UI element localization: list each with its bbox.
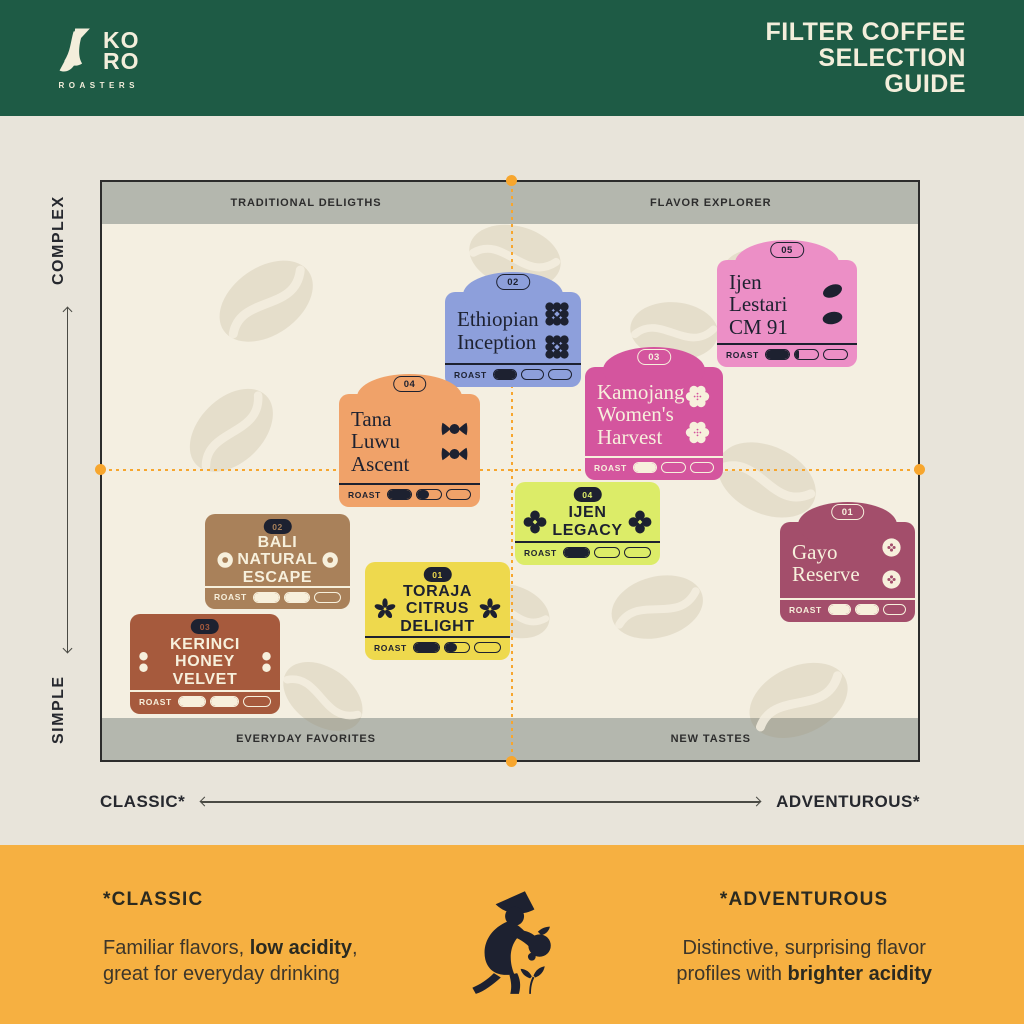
roast-label: ROAST (454, 370, 487, 380)
axis-dot-left (95, 464, 106, 475)
quadrant-label-new-tastes: NEW TASTES (671, 733, 751, 745)
classic-legend-body: Familiar flavors, low acidity, great for… (103, 935, 358, 987)
card-ijen-lestari-cm-91: 05 Ijen Lestari CM 91 ROAST (717, 260, 857, 367)
roast-level-pills (633, 462, 714, 473)
classic-legend-title: *CLASSIC (103, 889, 358, 911)
axis-label-adventurous: ADVENTUROUS* (776, 792, 920, 812)
roast-label: ROAST (139, 697, 172, 707)
roast-level-pills (178, 696, 271, 707)
logo-subtitle: ROASTERS (59, 81, 139, 90)
roast-level-pills (563, 547, 651, 558)
roast-indicator: ROAST (585, 456, 723, 480)
card-number-badge: 01 (831, 504, 865, 520)
rooster-logo-icon (58, 26, 100, 76)
farmer-icon (456, 881, 568, 1005)
roast-level-pills (828, 604, 906, 615)
axis-label-classic: CLASSIC* (100, 792, 185, 812)
card-gayo-reserve: 01 Gayo Reserve ROAST (780, 522, 915, 622)
pinwheel-icon (478, 597, 502, 621)
vertical-center-dashed-line (511, 182, 513, 760)
roast-label: ROAST (594, 463, 627, 473)
card-name: Tana Luwu Ascent (351, 408, 441, 475)
card-name: BALI NATURAL ESCAPE (237, 534, 317, 586)
coffee-bean-icon (820, 309, 845, 327)
roast-indicator: ROAST (717, 343, 857, 367)
axis-dot-right (914, 464, 925, 475)
donut-icon (213, 546, 237, 574)
roast-level-pills (493, 369, 572, 380)
roast-indicator: ROAST (365, 636, 510, 660)
roast-indicator: ROAST (130, 690, 280, 714)
quadrant-label-everyday-favorites: EVERYDAY FAVORITES (236, 733, 376, 745)
candy-icon (441, 446, 468, 462)
blossom-icon (684, 419, 711, 446)
quadrant-label-flavor-explorer: FLAVOR EXPLORER (650, 197, 771, 209)
card-kerinci-honey-velvet: 03 KERINCI HONEY VELVET ROAST (130, 614, 280, 714)
header-bar: KO RO ROASTERS FILTER COFFEE SELECTION G… (0, 0, 1024, 116)
roast-level-pills (765, 349, 848, 360)
button-icon (880, 536, 903, 559)
card-name: Ethiopian Inception (457, 308, 545, 353)
vertical-axis-arrow (67, 308, 68, 652)
card-icons (684, 383, 715, 446)
card-name: Gayo Reserve (792, 541, 880, 586)
card-number-badge: 03 (637, 349, 671, 365)
card-name: Kamojang Women's Harvest (597, 381, 684, 448)
clover-icon (523, 510, 547, 534)
roast-indicator: ROAST (445, 363, 581, 387)
coffee-selection-guide-poster: KO RO ROASTERS FILTER COFFEE SELECTION G… (0, 0, 1024, 1024)
roast-label: ROAST (348, 490, 381, 500)
adventurous-legend-body: Distinctive, surprising flavor profiles … (676, 935, 932, 987)
button-icon (880, 568, 903, 591)
quadrant-label-traditional-delights: TRADITIONAL DELIGTHS (230, 197, 381, 209)
card-name: IJEN LEGACY (547, 504, 628, 539)
roast-indicator: ROAST (339, 483, 480, 507)
bottom-quadrant-band: EVERYDAY FAVORITES NEW TASTES (102, 718, 918, 760)
card-toraja-citrus-delight: 01 TORAJA CITRUS DELIGHT ROAST (365, 562, 510, 660)
horizontal-axis: CLASSIC* ADVENTUROUS* (100, 792, 920, 812)
card-icons (820, 282, 849, 327)
horizontal-axis-arrow (201, 801, 760, 802)
quadrant-chart: TRADITIONAL DELIGTHS FLAVOR EXPLORER EVE… (100, 180, 920, 762)
card-number-badge: 05 (770, 242, 804, 258)
roast-label: ROAST (789, 605, 822, 615)
domino-icon (545, 335, 569, 359)
classic-legend: *CLASSIC Familiar flavors, low acidity, … (103, 889, 358, 987)
clover-icon (628, 510, 652, 534)
coffee-bean-icon (820, 282, 845, 300)
card-name: TORAJA CITRUS DELIGHT (397, 583, 478, 635)
card-icons (441, 421, 472, 462)
axis-dot-bottom (506, 756, 517, 767)
double-dot-icon (261, 651, 272, 674)
axis-dot-top (506, 175, 517, 186)
card-number-badge: 04 (393, 376, 427, 392)
card-ethiopian-inception: 02 Ethiopian Inception ROAST (445, 292, 581, 387)
roast-level-pills (413, 642, 501, 653)
card-name: KERINCI HONEY VELVET (149, 636, 261, 688)
roast-indicator: ROAST (780, 598, 915, 622)
koro-logo: KO RO ROASTERS (58, 26, 140, 90)
roast-label: ROAST (524, 548, 557, 558)
candy-icon (441, 421, 468, 437)
card-number-badge: 02 (496, 274, 530, 290)
card-bali-natural-escape: 02 BALI NATURAL ESCAPE ROAST (205, 514, 350, 609)
domino-icon (545, 302, 569, 326)
roast-indicator: ROAST (515, 541, 660, 565)
roast-indicator: ROAST (205, 586, 350, 610)
roast-level-pills (387, 489, 471, 500)
card-icons (880, 536, 907, 591)
roast-level-pills (253, 592, 341, 603)
card-ijen-legacy: 04 IJEN LEGACY ROAST (515, 482, 660, 565)
horizontal-center-dashed-line (102, 469, 918, 471)
donut-icon (318, 546, 342, 574)
card-name: Ijen Lestari CM 91 (729, 271, 820, 338)
logo-wordmark: KO RO (103, 30, 140, 72)
roast-label: ROAST (726, 350, 759, 360)
top-quadrant-band: TRADITIONAL DELIGTHS FLAVOR EXPLORER (102, 182, 918, 224)
adventurous-legend-title: *ADVENTUROUS (676, 889, 932, 911)
double-dot-icon (138, 651, 149, 674)
axis-label-complex: COMPLEX (50, 182, 86, 298)
vertical-axis: COMPLEX SIMPLE (50, 180, 86, 762)
card-tana-luwu-ascent: 04 Tana Luwu Ascent ROAST (339, 394, 480, 507)
legend-footer: *CLASSIC Familiar flavors, low acidity, … (0, 845, 1024, 1024)
poster-title: FILTER COFFEE SELECTION GUIDE (766, 19, 966, 98)
blossom-icon (684, 383, 711, 410)
adventurous-legend: *ADVENTUROUS Distinctive, surprising fla… (676, 889, 932, 987)
pinwheel-icon (373, 597, 397, 621)
roast-label: ROAST (374, 643, 407, 653)
roast-label: ROAST (214, 592, 247, 602)
card-icons (545, 302, 573, 359)
card-kamojang-womens-harvest: 03 Kamojang Women's Harvest ROAST (585, 367, 723, 480)
axis-label-simple: SIMPLE (50, 658, 86, 762)
